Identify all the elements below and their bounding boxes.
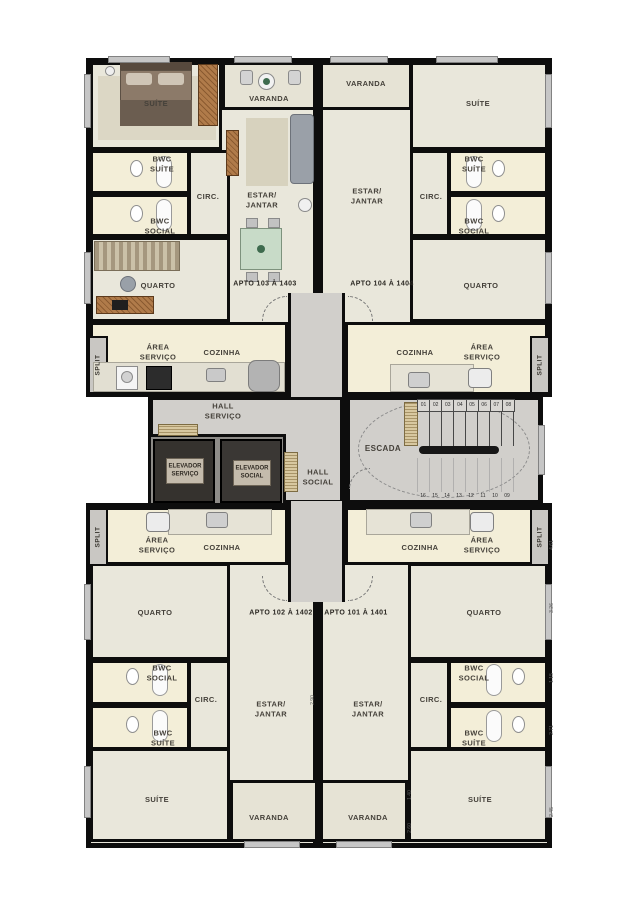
toilet-icon <box>492 205 505 222</box>
step-number: 06 <box>478 400 490 411</box>
window <box>538 425 545 475</box>
room-label-quarto: QUARTO <box>467 608 502 618</box>
pouf-icon <box>120 276 136 292</box>
room-circ-102 <box>188 660 230 750</box>
room-quarto-104 <box>410 237 548 322</box>
room-label-circ: CIRC. <box>197 192 219 202</box>
step-number: 11 <box>477 491 489 501</box>
tv-icon <box>112 300 128 310</box>
window <box>545 74 552 128</box>
room-label-bwc-suite: BWC SUÍTE <box>151 728 175 748</box>
room-label-suite: SUÍTE <box>468 795 492 805</box>
hall-social-label: HALL SOCIAL <box>303 467 334 487</box>
corridor-bottom <box>288 501 345 602</box>
chair-icon <box>240 70 253 85</box>
window <box>436 56 498 63</box>
stair-handrail-icon <box>419 446 499 454</box>
step-number: 04 <box>453 400 465 411</box>
vent-grille-icon <box>404 402 418 446</box>
sink-icon <box>206 368 226 382</box>
tv-rack-icon <box>226 130 239 176</box>
service-elevator-label: ELEVADOR SERVIÇO <box>169 464 202 479</box>
stove-icon <box>146 366 172 390</box>
side-table-icon <box>298 198 312 212</box>
step-number: 16 <box>417 491 429 501</box>
chair-icon <box>246 218 258 228</box>
room-label-bwc-suite: BWC SUÍTE <box>462 154 486 174</box>
step-number: 09 <box>501 491 513 501</box>
stair-treads <box>417 410 514 446</box>
room-label-circ: CIRC. <box>420 192 442 202</box>
room-label-estar: ESTAR/ JANTAR <box>352 699 384 719</box>
stair-step-numbers-top: 0102030405060708 <box>417 399 515 412</box>
room-varanda-101 <box>320 780 408 842</box>
dimension-label: 1.15 <box>549 673 555 683</box>
chair-icon <box>268 218 280 228</box>
water-tank-icon <box>248 360 280 392</box>
toilet-icon <box>130 160 143 177</box>
room-label-suite: SUÍTE <box>145 795 169 805</box>
room-label-quarto: QUARTO <box>464 281 499 291</box>
room-label-bwc-social: BWC SOCIAL <box>459 663 490 683</box>
room-label-varanda: VARANDA <box>346 79 386 89</box>
step-number: 12 <box>465 491 477 501</box>
dimension-label: 3.26 <box>549 603 555 613</box>
toilet-icon <box>512 716 525 733</box>
room-label-area-servico: ÁREA SERVIÇO <box>140 342 176 362</box>
vent-grille-icon <box>158 424 198 436</box>
room-label-bwc-social: BWC SOCIAL <box>459 216 490 236</box>
washer-door-icon <box>121 371 133 383</box>
room-label-estar: ESTAR/ JANTAR <box>246 190 278 210</box>
sink-icon <box>410 512 432 528</box>
room-label-split: SPLIT <box>537 355 544 376</box>
step-number: 14 <box>441 491 453 501</box>
dimension-label: 1.40 <box>407 790 413 800</box>
room-label-suite: SUÍTE <box>466 99 490 109</box>
step-number: 01 <box>418 400 429 411</box>
stair-step-numbers-bottom: 1615141312111009 <box>417 491 513 501</box>
room-label-varanda: VARANDA <box>249 94 289 104</box>
step-number: 13 <box>453 491 465 501</box>
step-number: 03 <box>441 400 453 411</box>
rug-icon <box>246 118 288 186</box>
toilet-icon <box>512 668 525 685</box>
kitchen-counter-icon <box>390 364 474 392</box>
room-label-quarto: QUARTO <box>138 608 173 618</box>
hall-servico-label: HALL SERVIÇO <box>205 401 241 421</box>
vent-grille-icon <box>284 452 298 492</box>
window <box>84 584 91 640</box>
apartment-label-104: APTO 104 À 1404 <box>350 279 413 288</box>
step-number: 08 <box>502 400 514 411</box>
step-number: 15 <box>429 491 441 501</box>
wardrobe-icon <box>198 64 218 126</box>
bed-headboard-icon <box>120 62 192 70</box>
room-label-cozinha: COZINHA <box>397 348 434 358</box>
room-label-bwc-suite: BWC SUÍTE <box>462 728 486 748</box>
room-label-bwc-social: BWC SOCIAL <box>147 663 178 683</box>
room-label-cozinha: COZINHA <box>402 543 439 553</box>
room-label-cozinha: COZINHA <box>204 543 241 553</box>
room-label-area-servico: ÁREA SERVIÇO <box>139 535 175 555</box>
window <box>244 841 300 848</box>
room-label-estar: ESTAR/ JANTAR <box>351 186 383 206</box>
room-label-area-servico: ÁREA SERVIÇO <box>464 342 500 362</box>
dimension-label: 2.71 <box>549 725 555 735</box>
window <box>84 252 91 304</box>
dimension-label: 2.60 <box>407 823 413 833</box>
window <box>108 56 170 63</box>
room-circ-101 <box>408 660 450 750</box>
room-label-bwc-suite: BWC SUÍTE <box>150 154 174 174</box>
laundry-sink-icon <box>468 368 492 388</box>
room-label-split: SPLIT <box>95 355 102 376</box>
room-label-area-servico: ÁREA SERVIÇO <box>464 535 500 555</box>
sink-icon <box>408 372 430 388</box>
step-number: 02 <box>429 400 441 411</box>
apartment-label-101: APTO 101 À 1401 <box>324 608 387 617</box>
sofa-icon <box>290 114 314 184</box>
toilet-icon <box>126 668 139 685</box>
escada-label: ESCADA <box>365 444 401 454</box>
window <box>84 74 91 128</box>
corridor-top <box>288 293 345 397</box>
sink-icon <box>206 512 228 528</box>
window <box>330 56 388 63</box>
window <box>545 252 552 304</box>
single-bed-icon <box>94 241 180 271</box>
room-label-varanda: VARANDA <box>249 813 289 823</box>
room-label-suite: SUÍTE <box>144 99 168 109</box>
shower-icon <box>486 710 502 742</box>
dimension-label: 2.45 <box>549 807 555 817</box>
floor-plan: 0102030405060708 1615141312111009 SUÍTE … <box>0 0 636 900</box>
toilet-icon <box>130 205 143 222</box>
room-label-bwc-social: BWC SOCIAL <box>145 216 176 236</box>
step-number: 07 <box>490 400 502 411</box>
room-label-split: SPLIT <box>537 527 544 548</box>
social-elevator-label: ELEVADOR SOCIAL <box>236 466 269 481</box>
room-label-circ: CIRC. <box>195 695 217 705</box>
step-number: 05 <box>466 400 478 411</box>
toilet-icon <box>492 160 505 177</box>
window <box>234 56 292 63</box>
laundry-sink-icon <box>146 512 170 532</box>
room-label-cozinha: COZINHA <box>204 348 241 358</box>
room-label-circ: CIRC. <box>420 695 442 705</box>
dimension-label: 2.90 <box>310 695 316 705</box>
lamp-icon <box>105 66 115 76</box>
laundry-sink-icon <box>470 512 494 532</box>
window <box>336 841 392 848</box>
apartment-label-103: APTO 103 À 1403 <box>233 279 296 288</box>
room-label-split: SPLIT <box>95 527 102 548</box>
pillow-icon <box>158 73 184 85</box>
centerpiece-icon <box>257 245 265 253</box>
chair-icon <box>288 70 301 85</box>
room-varanda-102 <box>230 780 318 842</box>
room-label-estar: ESTAR/ JANTAR <box>255 699 287 719</box>
apartment-label-102: APTO 102 À 1402 <box>249 608 312 617</box>
step-number: 10 <box>489 491 501 501</box>
window <box>84 766 91 818</box>
pillow-icon <box>126 73 152 85</box>
room-label-varanda: VARANDA <box>348 813 388 823</box>
dimension-label: 4.61 <box>549 540 555 550</box>
stair-treads-dashed <box>417 458 514 492</box>
toilet-icon <box>126 716 139 733</box>
room-label-quarto: QUARTO <box>141 281 176 291</box>
plant-icon <box>263 78 270 85</box>
